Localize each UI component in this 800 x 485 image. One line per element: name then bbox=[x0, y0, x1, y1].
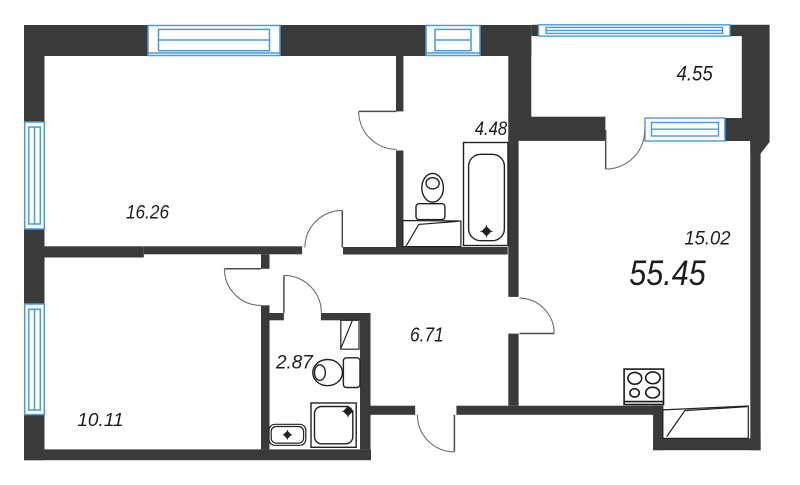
svg-text:55.45: 55.45 bbox=[629, 253, 706, 293]
svg-text:2.87: 2.87 bbox=[275, 351, 314, 373]
svg-text:15.02: 15.02 bbox=[684, 228, 731, 249]
svg-text:16.26: 16.26 bbox=[126, 203, 169, 224]
svg-text:10.11: 10.11 bbox=[77, 409, 123, 430]
svg-text:4.55: 4.55 bbox=[677, 63, 714, 86]
svg-text:4.48: 4.48 bbox=[475, 119, 508, 140]
svg-text:6.71: 6.71 bbox=[410, 324, 444, 346]
